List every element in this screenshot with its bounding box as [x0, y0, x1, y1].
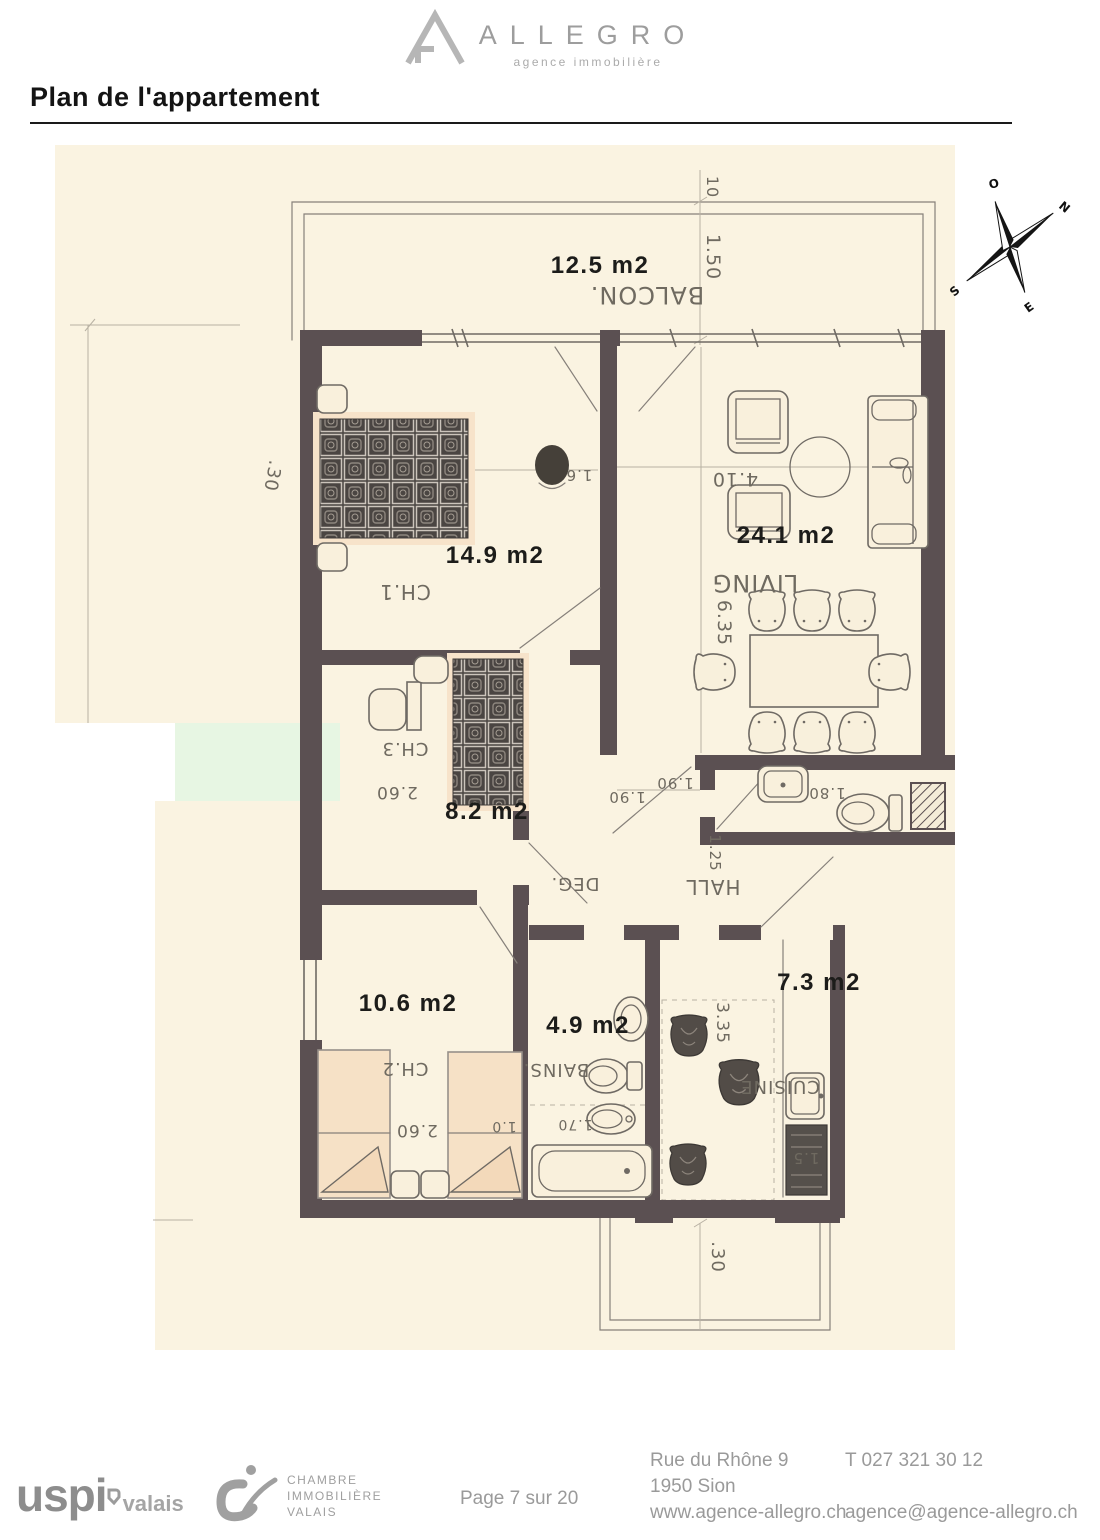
- desk-chair: [369, 689, 406, 730]
- ci-logo-text: CHAMBRE IMMOBILIÈRE VALAIS: [287, 1472, 382, 1520]
- dining-chair: [794, 590, 830, 631]
- dimension-label: 1.25: [706, 834, 724, 871]
- dimension-label: 1.50: [702, 234, 724, 280]
- living-area: 24.1 m2: [737, 522, 836, 549]
- dimension-label: 2.60: [396, 1120, 438, 1140]
- dining-chair: [839, 712, 875, 753]
- agency-contact: T 027 321 30 12 agence@agence-allegro.ch: [845, 1448, 1078, 1526]
- dimension-label: 1.6: [566, 466, 593, 484]
- plant: [535, 445, 569, 489]
- bedroom3-name: CH.3: [382, 738, 429, 759]
- bedroom2-name: CH.2: [382, 1058, 429, 1079]
- single-bed: [318, 1050, 390, 1198]
- compass-south-label: S: [948, 283, 963, 299]
- dining-chair: [794, 712, 830, 753]
- bedroom1-name: CH.1: [379, 580, 431, 604]
- wc-sink: [758, 766, 808, 802]
- dimension-label: 1.80: [808, 784, 845, 802]
- hall-name: HALL: [685, 875, 740, 899]
- bath-name: BAINS.: [523, 1059, 590, 1080]
- bedroom1-area: 14.9 m2: [446, 542, 545, 569]
- dimension-label: 1.90: [608, 788, 645, 806]
- address-street: Rue du Rhône 9: [650, 1448, 846, 1474]
- logo-text: ALLEGRO: [479, 20, 698, 51]
- document-page: ALLEGRO agence immobilière Plan de l'app…: [0, 0, 1100, 1540]
- ci-glyph-icon: [213, 1462, 279, 1529]
- kitchen-stool: [671, 1015, 707, 1056]
- desk: [407, 682, 421, 730]
- agency-website: www.agence-allegro.ch: [650, 1500, 846, 1526]
- dimension-label: 10: [703, 176, 722, 198]
- dimension-label: 4.10: [712, 468, 758, 490]
- agency-address: Rue du Rhône 9 1950 Sion www.agence-alle…: [650, 1448, 846, 1526]
- nightstand: [421, 1171, 449, 1198]
- dining-chair: [869, 654, 910, 690]
- kitchen-stool: [670, 1144, 706, 1185]
- dimension-label: 3.35: [712, 1002, 732, 1044]
- compass-east-label: E: [1022, 299, 1037, 315]
- balcony-area: 12.5 m2: [551, 252, 650, 279]
- cushion: [414, 656, 448, 683]
- logo-tagline: agence immobilière: [513, 55, 662, 69]
- armchair: [728, 391, 788, 453]
- degagement-name: DEG.: [551, 873, 600, 894]
- double-bed: [320, 419, 468, 538]
- dining-chair: [694, 654, 735, 690]
- sofa: [868, 396, 928, 548]
- uspi-region-text: valais: [123, 1491, 184, 1516]
- toilet: [584, 1059, 642, 1093]
- balcony-name: BALCON.: [590, 281, 704, 309]
- page-title: Plan de l'appartement: [30, 82, 1012, 124]
- nightstand: [317, 385, 347, 413]
- address-city: 1950 Sion: [650, 1474, 846, 1500]
- agency-logo: ALLEGRO agence immobilière: [0, 6, 1100, 71]
- nightstand: [317, 543, 347, 571]
- dimension-label: 1.90: [656, 774, 693, 792]
- dimension-label: 1.5: [793, 1149, 820, 1167]
- uspi-valais-logo: uspivalais: [16, 1468, 184, 1522]
- bath-area: 4.9 m2: [546, 1012, 630, 1039]
- chambre-immobiliere-logo: CHAMBRE IMMOBILIÈRE VALAIS: [213, 1462, 382, 1529]
- shaft-hatch: [911, 783, 945, 829]
- dimension-label: .30: [707, 1241, 728, 1273]
- uspi-logo-text: uspi: [16, 1469, 107, 1521]
- compass-star: [967, 201, 1054, 292]
- compass-rose: O N E S: [948, 165, 1078, 325]
- page-indicator: Page 7 sur 20: [460, 1486, 578, 1512]
- agency-email: agence@agence-allegro.ch: [845, 1500, 1078, 1526]
- single-bed: [453, 659, 523, 805]
- nightstand: [391, 1171, 419, 1198]
- uspi-pin-icon: [107, 1488, 121, 1510]
- compass-west-label: O: [987, 176, 1000, 192]
- wc-toilet: [837, 794, 902, 832]
- dimension-label: .30: [259, 459, 285, 494]
- dimension-label: 1.0: [491, 1118, 516, 1134]
- dimension-label: 1.70: [557, 1116, 592, 1132]
- lower-balcony-outline: [600, 1218, 830, 1330]
- dimension-label: 6.35: [713, 600, 735, 646]
- dimension-label: 2.60: [376, 782, 418, 802]
- scan-white-patches: [55, 723, 340, 1350]
- bedroom2-area: 10.6 m2: [359, 990, 458, 1017]
- dining-chair: [749, 712, 785, 753]
- floorplan-drawing: 12.5 m214.9 m224.1 m28.2 m210.6 m24.9 m2…: [55, 145, 955, 1350]
- allegro-mountain-icon: [403, 8, 465, 71]
- agency-phone: T 027 321 30 12: [845, 1448, 1078, 1474]
- bedroom3-area: 8.2 m2: [445, 798, 529, 825]
- living-name: LIVING: [712, 569, 799, 597]
- compass-north-label: N: [1056, 199, 1073, 216]
- kitchen-area: 7.3 m2: [777, 969, 861, 996]
- dining-chair: [839, 590, 875, 631]
- kitchen-name: CUISINE: [740, 1076, 820, 1097]
- bathtub: [532, 1145, 652, 1197]
- bidet: [587, 1104, 635, 1134]
- dining-table: [750, 635, 878, 707]
